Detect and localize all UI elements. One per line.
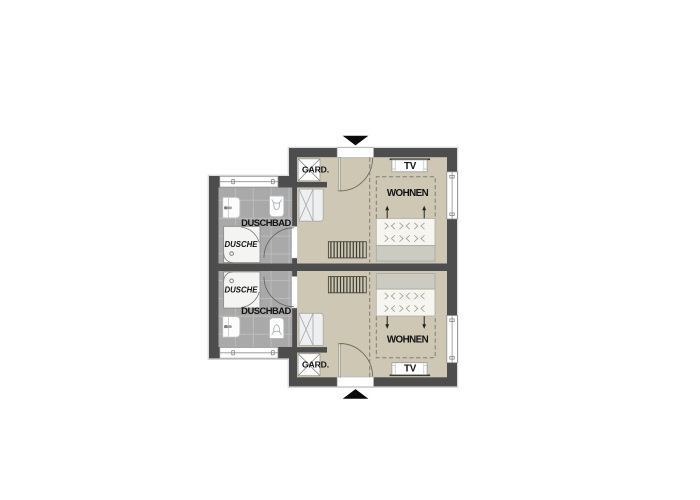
- svg-text:WOHNEN: WOHNEN: [387, 188, 429, 199]
- svg-text:DUSCHBAD: DUSCHBAD: [241, 217, 291, 228]
- svg-text:DUSCHBAD: DUSCHBAD: [241, 305, 291, 316]
- svg-text:TV: TV: [404, 364, 417, 375]
- svg-text:GARD.: GARD.: [302, 360, 329, 370]
- svg-text:TV: TV: [404, 161, 417, 172]
- svg-text:DUSCHE: DUSCHE: [225, 240, 259, 249]
- svg-text:DUSCHE: DUSCHE: [225, 286, 259, 295]
- svg-text:WOHNEN: WOHNEN: [387, 334, 429, 345]
- svg-text:GARD.: GARD.: [302, 165, 329, 175]
